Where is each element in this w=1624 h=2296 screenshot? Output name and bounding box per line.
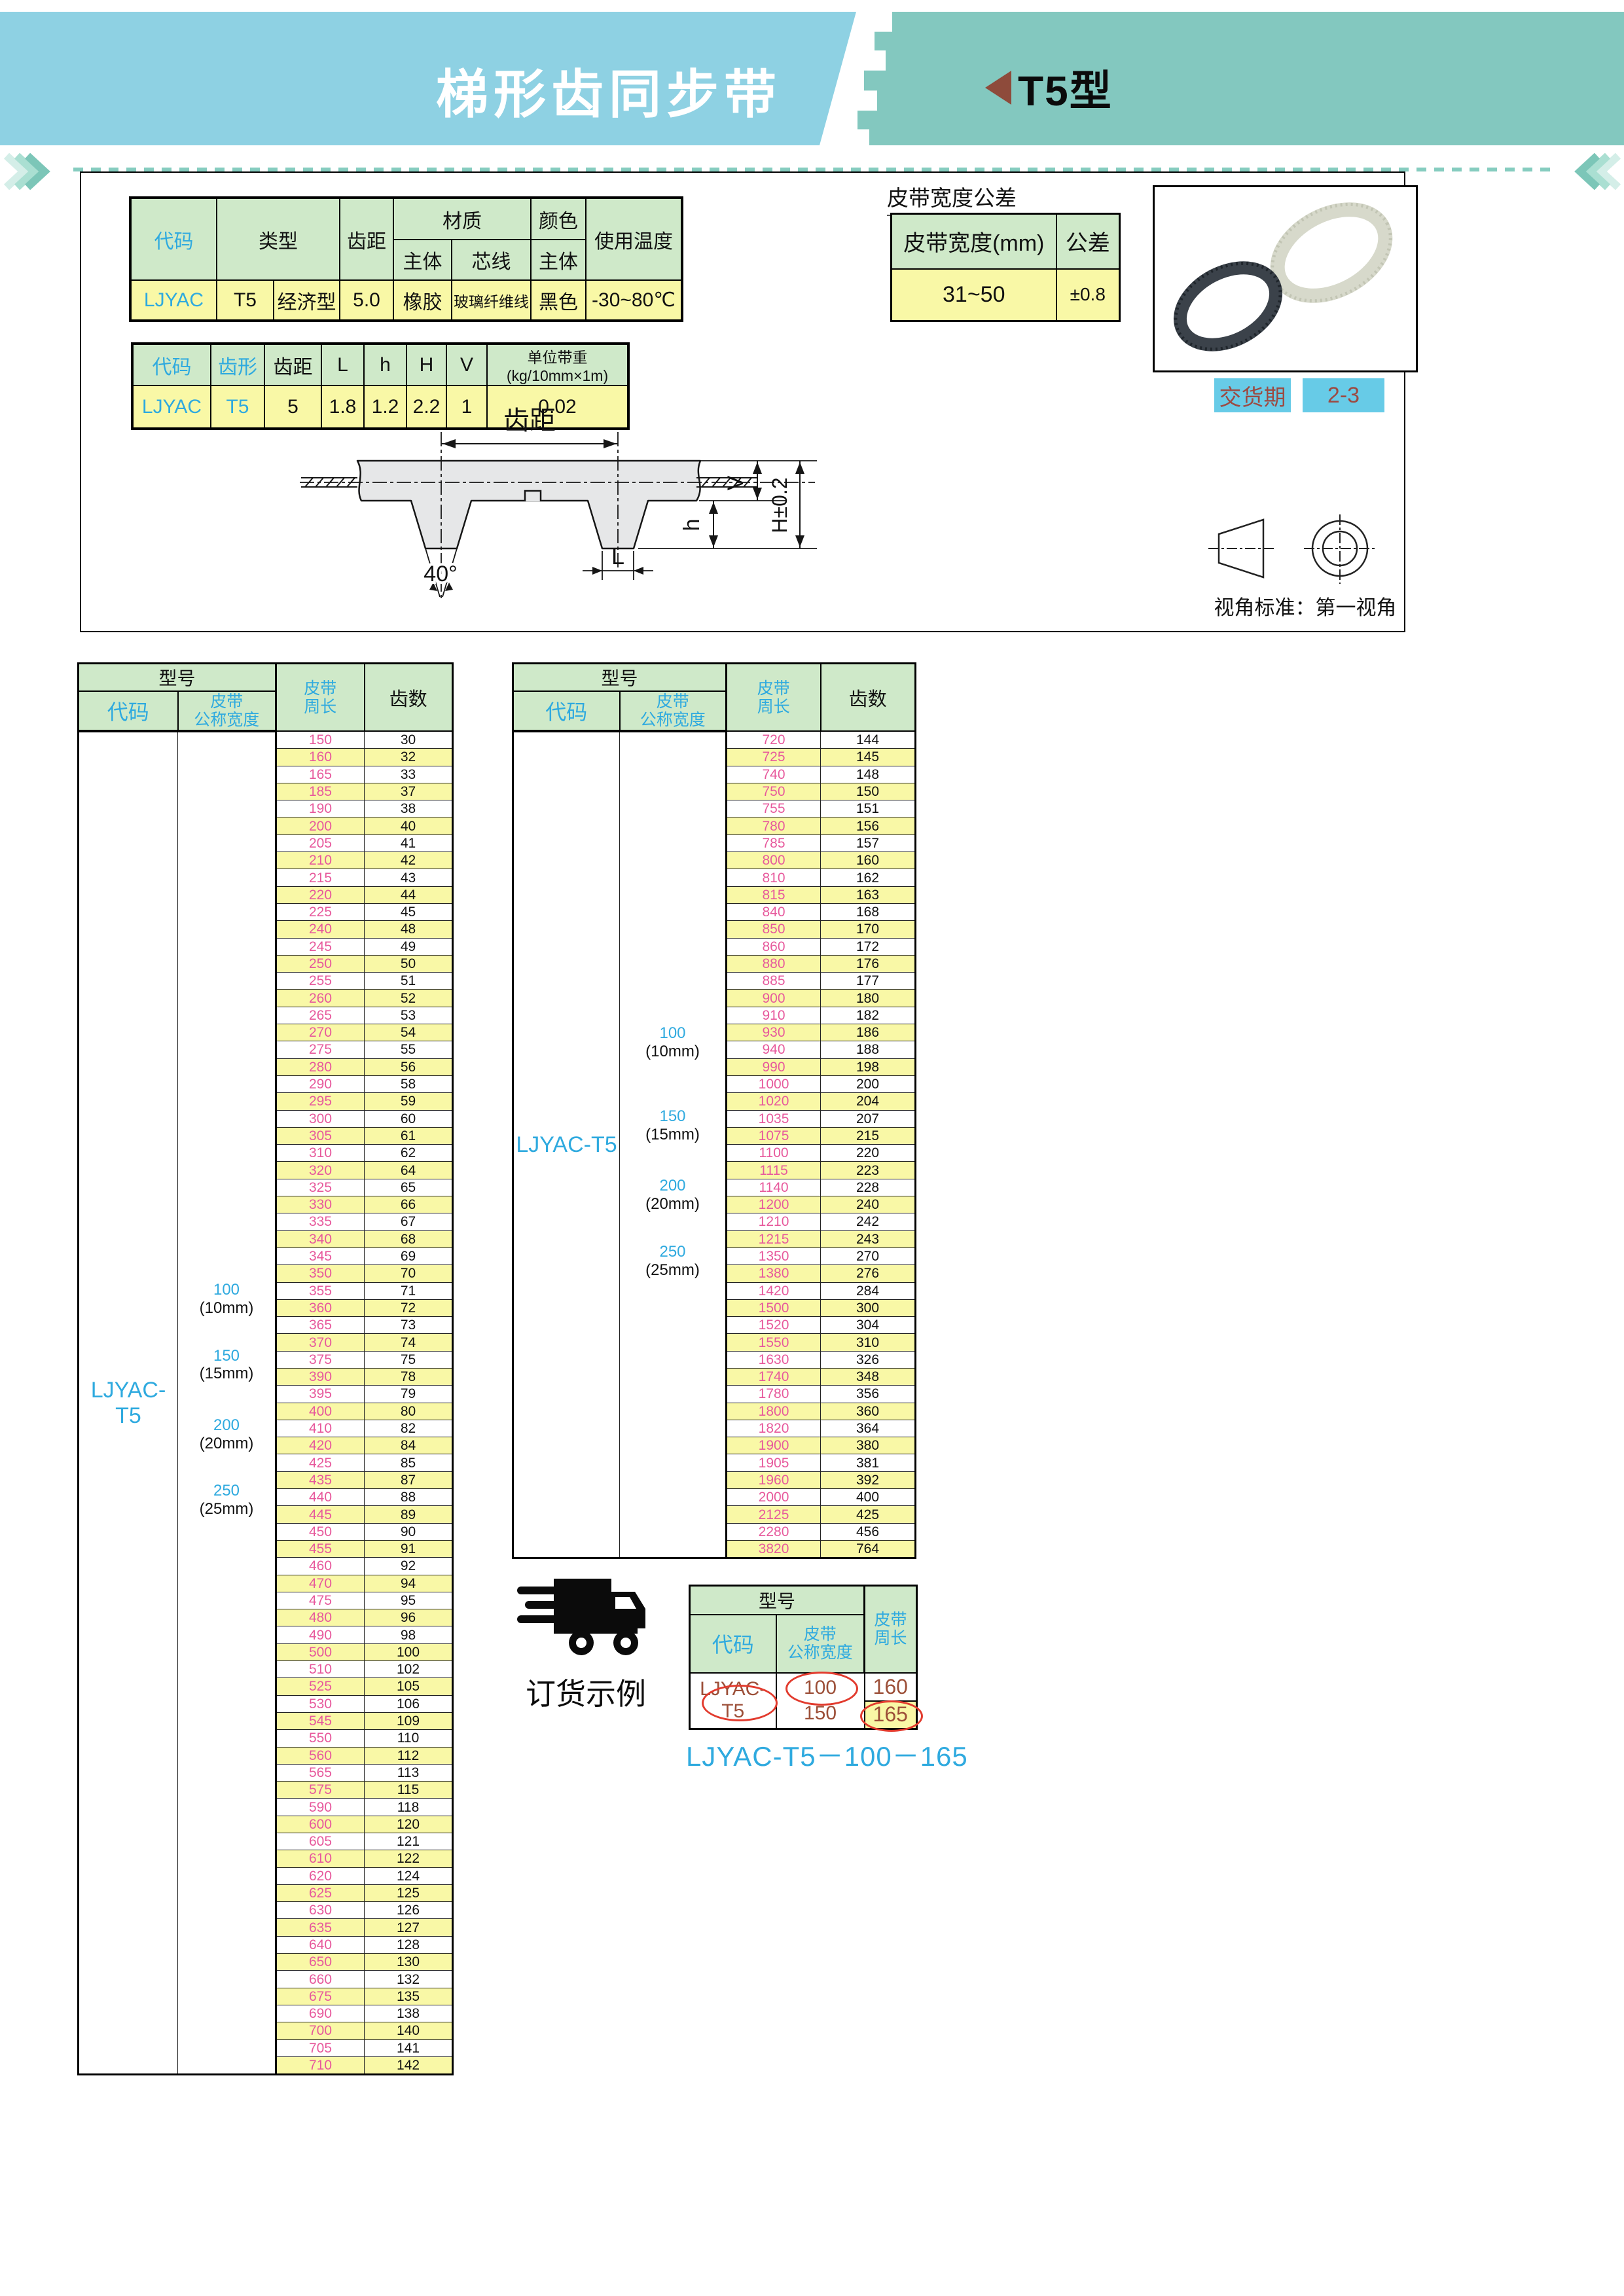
belt-length-value: 690: [276, 2005, 365, 2022]
belt-length-value: 510: [276, 1661, 365, 1678]
belt-length-header: 皮带 周长: [276, 664, 365, 732]
belt-length-value: 930: [727, 1024, 821, 1041]
belt-length-value: 220: [276, 886, 365, 903]
size-table-right: 型号 皮带 周长 齿数 代码 皮带 公称宽度 LJYAC-T5100(10mm)…: [512, 662, 916, 1559]
teeth-count-value: 284: [821, 1282, 916, 1299]
teeth-count-value: 65: [365, 1179, 453, 1196]
belt-length-value: 545: [276, 1712, 365, 1729]
model-header: 型号: [79, 664, 276, 692]
teeth-count-value: 126: [365, 1902, 453, 1919]
teeth-count-value: 30: [365, 731, 453, 749]
teeth-count-value: 113: [365, 1764, 453, 1781]
teeth-count-value: 58: [365, 1075, 453, 1092]
teeth-count-value: 88: [365, 1489, 453, 1506]
order-example-title: 订货示例: [504, 1670, 668, 1713]
teeth-count-value: 49: [365, 938, 453, 955]
teeth-count-value: 109: [365, 1712, 453, 1729]
tolerance-title: 皮带宽度公差: [887, 181, 1020, 216]
belt-length-value: 330: [276, 1196, 365, 1213]
belt-length-value: 525: [276, 1678, 365, 1695]
belt-length-value: 355: [276, 1282, 365, 1299]
teeth-count-value: 89: [365, 1506, 453, 1523]
belt-length-value: 810: [727, 869, 821, 886]
col-header-code: 代码: [132, 344, 211, 386]
belt-length-value: 2280: [727, 1523, 821, 1540]
type-tag-label: T5型: [1018, 58, 1113, 118]
belt-length-value: 470: [276, 1575, 365, 1592]
width-label: 100(10mm): [620, 1024, 725, 1060]
belt-length-value: 600: [276, 1816, 365, 1833]
teeth-count-value: 48: [365, 921, 453, 938]
belt-length-value: 445: [276, 1506, 365, 1523]
teeth-count-value: 120: [365, 1816, 453, 1833]
belt-length-value: 260: [276, 990, 365, 1007]
belt-length-value: 435: [276, 1471, 365, 1488]
teeth-count-header: 齿数: [365, 664, 453, 732]
first-angle-projection-icon: [1206, 512, 1402, 588]
teeth-count-value: 91: [365, 1540, 453, 1557]
width-labels-cell: 100(10mm)150(15mm)200(20mm)250(25mm): [178, 731, 276, 2075]
cell-width-range: 31~50: [892, 269, 1056, 321]
belt-length-value: 245: [276, 938, 365, 955]
teeth-count-value: 168: [821, 903, 916, 920]
belt-length-value: 190: [276, 800, 365, 817]
teeth-count-value: 122: [365, 1850, 453, 1867]
code-header: 代码: [690, 1615, 776, 1673]
teeth-count-value: 52: [365, 990, 453, 1007]
belt-length-value: 560: [276, 1747, 365, 1764]
teeth-count-value: 150: [821, 783, 916, 800]
belt-length-value: 780: [727, 817, 821, 834]
teeth-count-value: 78: [365, 1368, 453, 1385]
col-header-H: H: [406, 344, 446, 386]
belt-length-value: 310: [276, 1145, 365, 1162]
belt-length-value: 280: [276, 1058, 365, 1075]
belt-length-value: 335: [276, 1213, 365, 1230]
highlight-ellipse-width: [785, 1672, 858, 1706]
teeth-count-value: 124: [365, 1867, 453, 1884]
belt-length-value: 840: [727, 903, 821, 920]
belt-length-value: 460: [276, 1558, 365, 1575]
belt-length-value: 860: [727, 938, 821, 955]
teeth-count-value: 148: [821, 766, 916, 783]
teeth-count-value: 82: [365, 1420, 453, 1437]
model-header: 型号: [513, 664, 727, 692]
model-header: 型号: [690, 1586, 865, 1615]
belt-length-value: 425: [276, 1454, 365, 1471]
teeth-count-value: 392: [821, 1471, 916, 1488]
teeth-count-value: 105: [365, 1678, 453, 1695]
teeth-count-value: 87: [365, 1471, 453, 1488]
teeth-count-value: 151: [821, 800, 916, 817]
cell-color: 黑色: [531, 280, 586, 321]
teeth-count-value: 96: [365, 1609, 453, 1626]
teeth-count-value: 55: [365, 1041, 453, 1058]
belt-length-value: 210: [276, 852, 365, 869]
belt-length-value: 325: [276, 1179, 365, 1196]
belt-length-value: 755: [727, 800, 821, 817]
teeth-count-value: 204: [821, 1093, 916, 1110]
teeth-count-value: 425: [821, 1506, 916, 1523]
belt-length-value: 265: [276, 1007, 365, 1024]
teeth-count-value: 68: [365, 1230, 453, 1247]
belt-length-value: 290: [276, 1075, 365, 1092]
angle-label: 40°: [424, 562, 457, 586]
belt-length-value: 365: [276, 1317, 365, 1334]
width-label: 150(15mm): [178, 1347, 275, 1383]
teeth-count-value: 162: [821, 869, 916, 886]
cell-cord: 玻璃纤维线: [452, 280, 531, 321]
code-value-cell: LJYAC-T5: [513, 731, 620, 1558]
code-header: 代码: [513, 691, 620, 731]
belt-rings-image: [1155, 187, 1412, 367]
belt-length-value: 1200: [727, 1196, 821, 1213]
width-label: 150(15mm): [620, 1107, 725, 1143]
belt-length-value: 1075: [727, 1127, 821, 1144]
belt-length-value: 390: [276, 1368, 365, 1385]
size-row: LJYAC-T5100(10mm)150(15mm)200(20mm)250(2…: [79, 731, 453, 749]
teeth-count-value: 186: [821, 1024, 916, 1041]
teeth-count-value: 95: [365, 1592, 453, 1609]
type-tag: T5型: [985, 58, 1113, 118]
belt-length-value: 395: [276, 1386, 365, 1403]
teeth-count-value: 74: [365, 1334, 453, 1351]
belt-length-value: 900: [727, 990, 821, 1007]
teeth-count-value: 182: [821, 1007, 916, 1024]
teeth-count-value: 360: [821, 1403, 916, 1420]
page-title: 梯形齿同步带: [393, 52, 825, 128]
belt-length-value: 710: [276, 2056, 365, 2074]
teeth-count-value: 128: [365, 1936, 453, 1953]
belt-length-value: 500: [276, 1643, 365, 1660]
belt-length-value: 440: [276, 1489, 365, 1506]
teeth-count-value: 157: [821, 834, 916, 852]
belt-length-value: 1100: [727, 1145, 821, 1162]
teeth-count-value: 80: [365, 1403, 453, 1420]
belt-length-value: 1550: [727, 1334, 821, 1351]
spec-table-main: 代码 类型 齿距 材质 颜色 使用温度 主体 芯线 主体 LJYAC T5 经济…: [129, 196, 683, 322]
cell-tooth-shape: T5: [211, 386, 264, 429]
teeth-count-value: 223: [821, 1162, 916, 1179]
belt-length-value: 215: [276, 869, 365, 886]
teeth-count-value: 100: [365, 1643, 453, 1660]
belt-length-value: 1500: [727, 1299, 821, 1316]
cell-pitch: 5.0: [340, 280, 393, 321]
teeth-count-value: 348: [821, 1368, 916, 1385]
belt-length-value: 375: [276, 1351, 365, 1368]
teeth-count-value: 170: [821, 921, 916, 938]
teeth-count-value: 59: [365, 1093, 453, 1110]
belt-length-value: 590: [276, 1799, 365, 1816]
tolerance-table: 皮带宽度(mm) 公差 31~50 ±0.8: [890, 213, 1121, 322]
belt-length-value: 1630: [727, 1351, 821, 1368]
code-value-cell: LJYAC-T5: [79, 731, 178, 2075]
belt-length-value: 880: [727, 955, 821, 972]
teeth-count-value: 176: [821, 955, 916, 972]
belt-length-value: 635: [276, 1919, 365, 1936]
belt-length-value: 305: [276, 1127, 365, 1144]
teeth-count-value: 163: [821, 886, 916, 903]
col-header-unit-weight: 单位带重(kg/10mm×1m): [487, 344, 628, 386]
belt-length-value: 490: [276, 1626, 365, 1643]
teeth-count-value: 276: [821, 1265, 916, 1282]
belt-length-value: 815: [727, 886, 821, 903]
belt-length-value: 785: [727, 834, 821, 852]
teeth-count-value: 70: [365, 1265, 453, 1282]
teeth-count-value: 180: [821, 990, 916, 1007]
size-table-left: 型号 皮带 周长 齿数 代码 皮带 公称宽度 LJYAC-T5100(10mm)…: [77, 662, 454, 2075]
teeth-count-value: 66: [365, 1196, 453, 1213]
col-header-cord: 芯线: [452, 240, 531, 280]
teeth-count-value: 84: [365, 1437, 453, 1454]
belt-length-value: 300: [276, 1110, 365, 1127]
col-header-L: L: [321, 344, 364, 386]
chevron-decoration-icon: [4, 153, 69, 190]
belt-length-value: 340: [276, 1230, 365, 1247]
width-header: 皮带 公称宽度: [178, 691, 276, 731]
belt-length-value: 185: [276, 783, 365, 800]
cell-tolerance-value: ±0.8: [1056, 269, 1120, 321]
belt-length-value: 1350: [727, 1247, 821, 1265]
belt-length-value: 910: [727, 1007, 821, 1024]
belt-length-value: 255: [276, 973, 365, 990]
teeth-count-value: 300: [821, 1299, 916, 1316]
teeth-count-value: 115: [365, 1782, 453, 1799]
teeth-count-value: 32: [365, 749, 453, 766]
teeth-count-value: 381: [821, 1454, 916, 1471]
belt-length-value: 410: [276, 1420, 365, 1437]
teeth-count-value: 62: [365, 1145, 453, 1162]
width-labels-cell: 100(10mm)150(15mm)200(20mm)250(25mm): [620, 731, 727, 1558]
belt-length-value: 705: [276, 2039, 365, 2056]
teeth-count-value: 106: [365, 1695, 453, 1712]
belt-length-header: 皮带 周长: [727, 664, 821, 732]
teeth-count-value: 33: [365, 766, 453, 783]
belt-length-value: 2000: [727, 1489, 821, 1506]
belt-length-value: 225: [276, 903, 365, 920]
width-label: 100(10mm): [178, 1281, 275, 1317]
belt-length-value: 700: [276, 2022, 365, 2039]
teeth-count-value: 71: [365, 1282, 453, 1299]
belt-length-value: 1520: [727, 1317, 821, 1334]
catalog-page: 梯形齿同步带 T5型 代码 类型 齿距 材质 颜色 使用温度 主体 芯线 主体: [0, 0, 1624, 2296]
col-header-color: 颜色: [531, 198, 586, 240]
belt-length-value: 625: [276, 1884, 365, 1901]
dim-h-label: h: [679, 519, 704, 531]
width-label: 200(20mm): [178, 1416, 275, 1452]
teeth-count-value: 242: [821, 1213, 916, 1230]
code-value: LJYAC-T5: [514, 1132, 619, 1158]
teeth-count-value: 220: [821, 1145, 916, 1162]
cell-code: LJYAC: [130, 280, 217, 321]
belt-length-value: 650: [276, 1954, 365, 1971]
belt-length-value: 475: [276, 1592, 365, 1609]
left-triangle-icon: [985, 71, 1011, 105]
teeth-count-value: 132: [365, 1971, 453, 1988]
belt-length-value: 205: [276, 834, 365, 852]
teeth-count-value: 177: [821, 973, 916, 990]
belt-length-value: 675: [276, 1988, 365, 2005]
teeth-count-value: 45: [365, 903, 453, 920]
belt-length-value: 295: [276, 1093, 365, 1110]
belt-length-value: 345: [276, 1247, 365, 1265]
belt-length-value: 2125: [727, 1506, 821, 1523]
truck-icon: [516, 1570, 657, 1668]
belt-length-value: 350: [276, 1265, 365, 1282]
col-header-pitch: 齿距: [340, 198, 393, 280]
teeth-count-value: 102: [365, 1661, 453, 1678]
belt-length-value: 1800: [727, 1403, 821, 1420]
teeth-count-value: 90: [365, 1523, 453, 1540]
teeth-count-value: 270: [821, 1247, 916, 1265]
dim-v-label: V: [723, 475, 748, 490]
belt-length-value: 420: [276, 1437, 365, 1454]
teeth-count-value: 73: [365, 1317, 453, 1334]
col-header-belt-width: 皮带宽度(mm): [892, 214, 1056, 269]
col-header-tolerance: 公差: [1056, 214, 1120, 269]
belt-length-value: 1900: [727, 1437, 821, 1454]
teeth-count-value: 75: [365, 1351, 453, 1368]
col-header-code: 代码: [130, 198, 217, 280]
cell-type2: 经济型: [274, 280, 340, 321]
code-value: LJYAC-T5: [79, 1378, 177, 1429]
teeth-count-value: 130: [365, 1954, 453, 1971]
dim-H-label: H±0.2: [768, 477, 791, 533]
col-header-h: h: [364, 344, 406, 386]
belt-length-value: 450: [276, 1523, 365, 1540]
teeth-count-value: 79: [365, 1386, 453, 1403]
belt-length-value: 1210: [727, 1213, 821, 1230]
teeth-count-value: 54: [365, 1024, 453, 1041]
belt-length-value: 1115: [727, 1162, 821, 1179]
col-header-body: 主体: [393, 240, 452, 280]
belt-length-value: 640: [276, 1936, 365, 1953]
belt-length-value: 740: [727, 766, 821, 783]
banner-right-background: [823, 12, 1624, 145]
teeth-count-value: 198: [821, 1058, 916, 1075]
teeth-count-value: 40: [365, 817, 453, 834]
belt-length-value: 575: [276, 1782, 365, 1799]
teeth-count-value: 140: [365, 2022, 453, 2039]
belt-length-value: 1140: [727, 1179, 821, 1196]
belt-length-value: 270: [276, 1024, 365, 1041]
belt-length-value: 1000: [727, 1075, 821, 1092]
belt-length-value: 850: [727, 921, 821, 938]
delivery-label-badge: 交货期: [1214, 378, 1291, 412]
belt-length-value: 1420: [727, 1282, 821, 1299]
col-header-material: 材质: [393, 198, 531, 240]
belt-length-value: 1960: [727, 1471, 821, 1488]
teeth-count-value: 188: [821, 1041, 916, 1058]
belt-length-value: 1780: [727, 1386, 821, 1403]
teeth-count-value: 304: [821, 1317, 916, 1334]
teeth-count-value: 50: [365, 955, 453, 972]
teeth-count-value: 61: [365, 1127, 453, 1144]
belt-length-value: 885: [727, 973, 821, 990]
belt-length-value: 360: [276, 1299, 365, 1316]
teeth-count-value: 42: [365, 852, 453, 869]
belt-length-value: 725: [727, 749, 821, 766]
teeth-count-value: 94: [365, 1575, 453, 1592]
width-header: 皮带 公称宽度: [776, 1615, 865, 1673]
highlight-ellipse-length: [860, 1700, 923, 1732]
projection-note: 视角标准：第一视角: [1195, 591, 1415, 620]
teeth-count-value: 72: [365, 1299, 453, 1316]
teeth-count-value: 85: [365, 1454, 453, 1471]
cell-temp: -30~80℃: [586, 280, 682, 321]
belt-length-value: 800: [727, 852, 821, 869]
belt-length-value: 565: [276, 1764, 365, 1781]
width-label: 200(20mm): [620, 1177, 725, 1213]
teeth-count-value: 135: [365, 1988, 453, 2005]
teeth-count-header: 齿数: [821, 664, 916, 732]
belt-length-value: 1035: [727, 1110, 821, 1127]
belt-length-value: 990: [727, 1058, 821, 1075]
col-header-pitch: 齿距: [264, 344, 321, 386]
belt-length-value: 480: [276, 1609, 365, 1626]
teeth-count-value: 121: [365, 1833, 453, 1850]
teeth-count-value: 37: [365, 783, 453, 800]
belt-length-value: 610: [276, 1850, 365, 1867]
highlight-ellipse-code: [702, 1685, 778, 1721]
teeth-count-value: 156: [821, 817, 916, 834]
col-header-type: 类型: [217, 198, 340, 280]
teeth-count-value: 125: [365, 1884, 453, 1901]
teeth-count-value: 160: [821, 852, 916, 869]
belt-length-value: 160: [276, 749, 365, 766]
teeth-count-value: 110: [365, 1730, 453, 1747]
belt-length-value: 750: [727, 783, 821, 800]
belt-length-value: 605: [276, 1833, 365, 1850]
teeth-count-value: 200: [821, 1075, 916, 1092]
belt-length-value: 1215: [727, 1230, 821, 1247]
teeth-count-value: 67: [365, 1213, 453, 1230]
belt-length-value: 1380: [727, 1265, 821, 1282]
delivery-value-badge: 2-3: [1303, 378, 1384, 412]
teeth-count-value: 172: [821, 938, 916, 955]
teeth-count-value: 380: [821, 1437, 916, 1454]
col-header-tooth-shape: 齿形: [211, 344, 264, 386]
teeth-count-value: 44: [365, 886, 453, 903]
teeth-count-value: 51: [365, 973, 453, 990]
belt-length-value: 1820: [727, 1420, 821, 1437]
belt-length-value: 530: [276, 1695, 365, 1712]
teeth-count-value: 228: [821, 1179, 916, 1196]
teeth-count-value: 144: [821, 731, 916, 749]
teeth-count-value: 141: [365, 2039, 453, 2056]
teeth-count-value: 400: [821, 1489, 916, 1506]
col-header-V: V: [446, 344, 487, 386]
belt-length-value: 250: [276, 955, 365, 972]
belt-length-value: 200: [276, 817, 365, 834]
teeth-count-value: 207: [821, 1110, 916, 1127]
belt-length-value: 1740: [727, 1368, 821, 1385]
teeth-count-value: 243: [821, 1230, 916, 1247]
size-row: LJYAC-T5100(10mm)150(15mm)200(20mm)250(2…: [513, 731, 916, 749]
teeth-count-value: 64: [365, 1162, 453, 1179]
cell-code: LJYAC: [132, 386, 211, 429]
belt-length-value: 320: [276, 1162, 365, 1179]
teeth-count-value: 145: [821, 749, 916, 766]
teeth-count-value: 53: [365, 1007, 453, 1024]
teeth-count-value: 41: [365, 834, 453, 852]
belt-length-value: 660: [276, 1971, 365, 1988]
belt-length-value: 240: [276, 921, 365, 938]
col-header-color-body: 主体: [531, 240, 586, 280]
teeth-count-value: 60: [365, 1110, 453, 1127]
product-photo: [1153, 185, 1418, 372]
teeth-count-value: 69: [365, 1247, 453, 1265]
